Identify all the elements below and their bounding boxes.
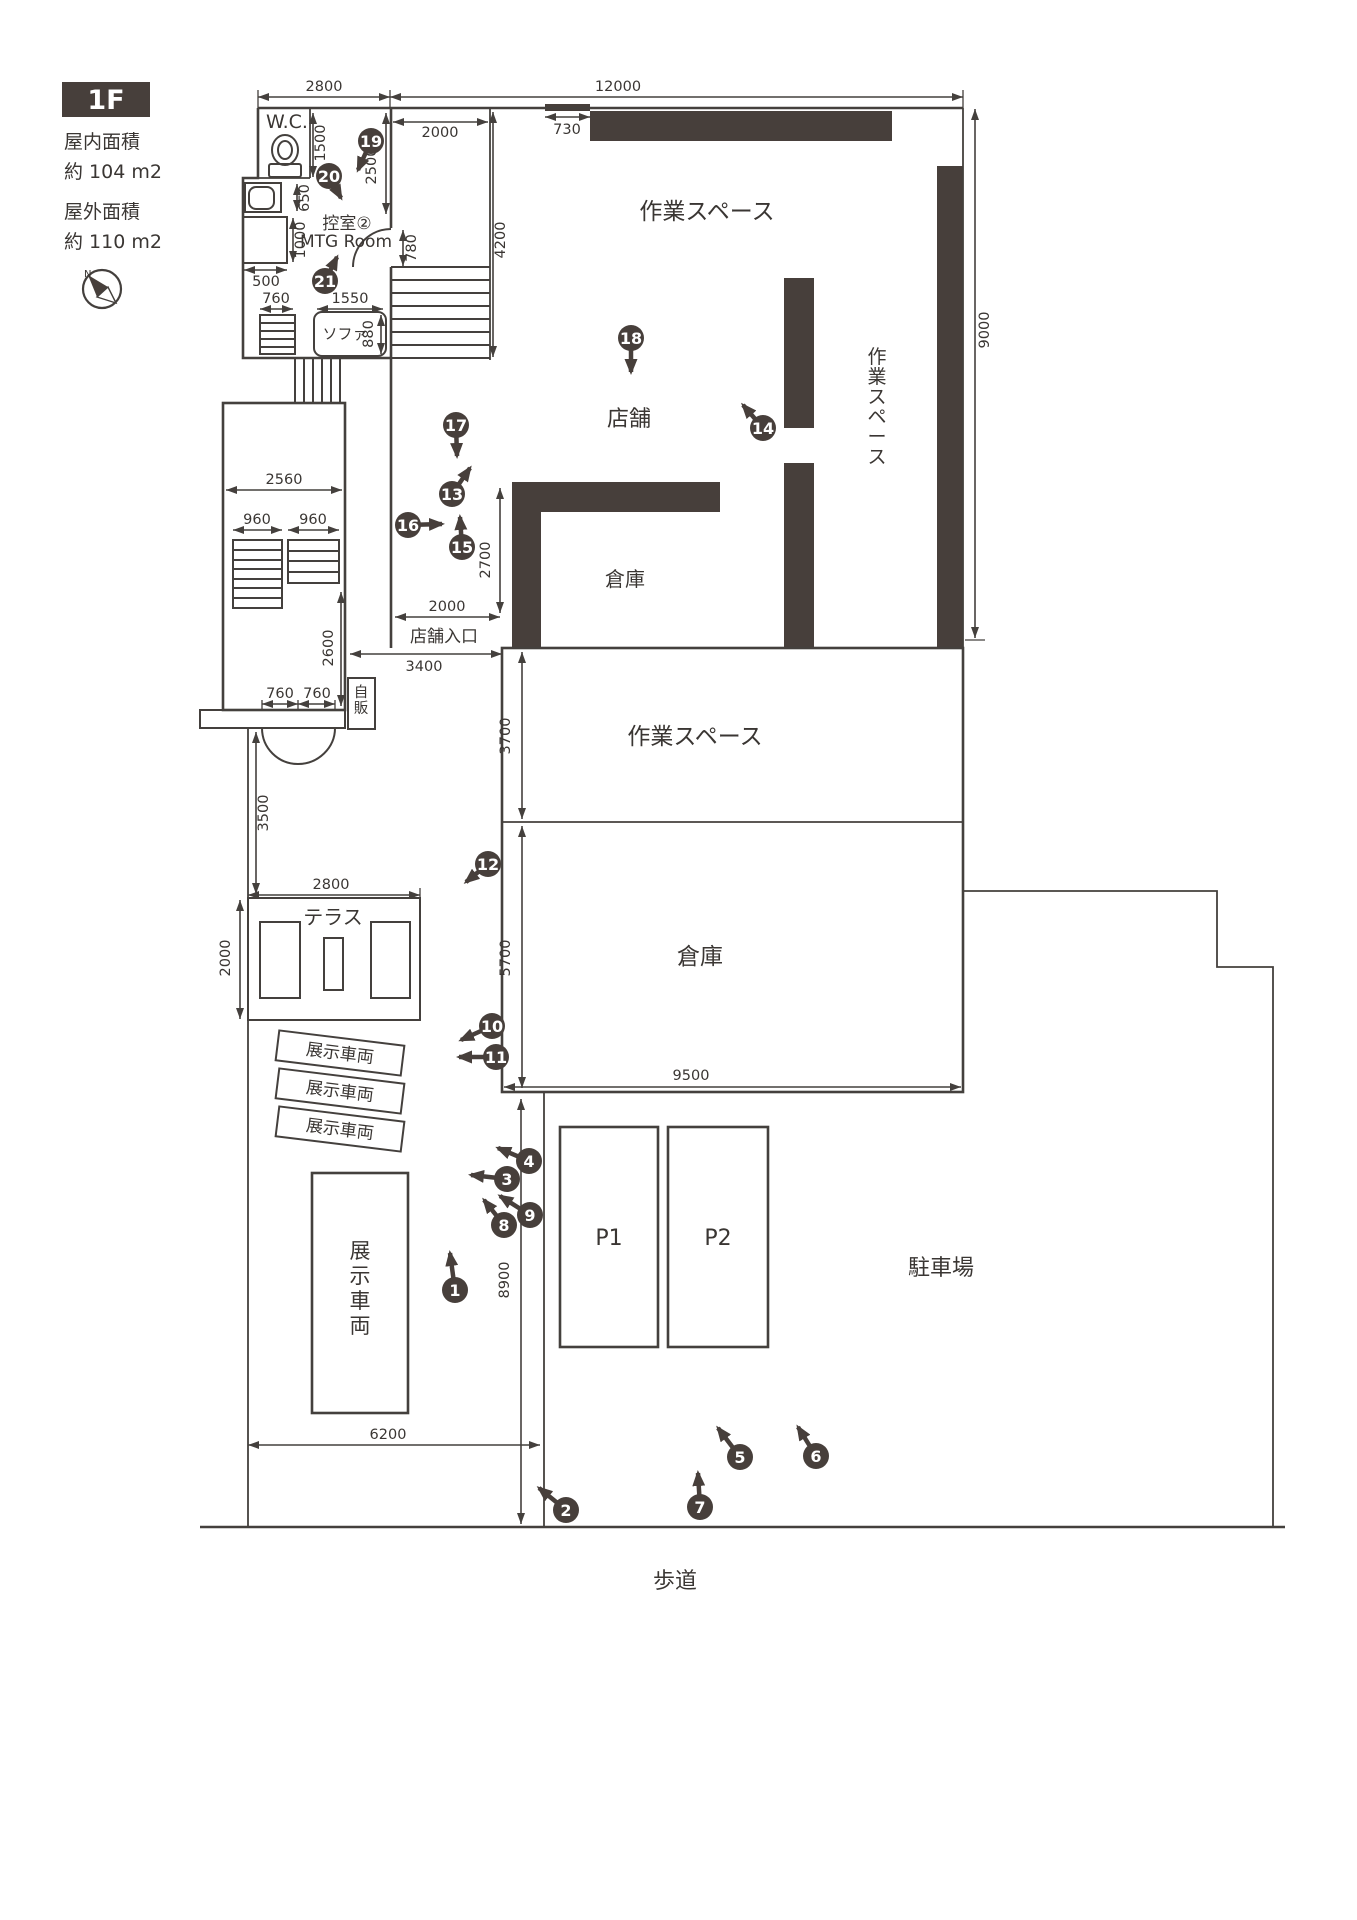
dim-760-door-b: 760 — [303, 686, 331, 702]
dim-1500: 1500 — [313, 125, 329, 162]
room-label-workspace-right: 作業スペース — [867, 346, 886, 468]
terrace-planter-right — [371, 922, 410, 998]
display-car-strips: 展示車両 展示車両 展示車両 — [276, 1030, 405, 1151]
marker-7: 7 — [687, 1473, 713, 1520]
room-label-vending: 自販 — [354, 684, 369, 717]
svg-text:20: 20 — [318, 167, 340, 186]
site-boundary-right — [963, 891, 1273, 1527]
entry-wall-band — [200, 710, 345, 728]
dim-2800-terrace: 2800 — [313, 877, 350, 893]
dim-960a: 960 — [243, 512, 271, 528]
svg-text:10: 10 — [481, 1017, 503, 1036]
dim-500: 500 — [252, 274, 280, 290]
terrace-planter-left — [260, 922, 300, 998]
svg-text:21: 21 — [314, 272, 336, 291]
marker-5: 5 — [718, 1428, 753, 1470]
dim-760-shoe: 760 — [262, 291, 290, 307]
marker-12: 12 — [466, 851, 501, 882]
sidebar: 1F 屋内面積 約 104 m2 屋外面積 約 110 m2 N — [62, 82, 162, 308]
staircase-left — [233, 540, 282, 608]
dim-9000: 9000 — [977, 312, 993, 349]
dim-730: 730 — [553, 122, 581, 138]
svg-text:4: 4 — [523, 1152, 534, 1171]
dim-650: 650 — [297, 184, 313, 212]
dim-2000-terrace: 2000 — [218, 940, 234, 977]
svg-text:7: 7 — [694, 1498, 705, 1517]
dim-2000-entrance: 2000 — [429, 599, 466, 615]
wall-mid-lower-bar — [784, 463, 814, 648]
dim-3400: 3400 — [406, 659, 443, 675]
svg-text:13: 13 — [441, 485, 463, 504]
dim-9500: 9500 — [673, 1068, 710, 1084]
svg-text:18: 18 — [620, 329, 642, 348]
floor-badge-label: 1F — [87, 85, 124, 116]
marker-1: 1 — [442, 1253, 468, 1303]
display-car-strip-3-label: 展示車両 — [305, 1116, 375, 1144]
outdoor-area-value: 約 110 m2 — [64, 231, 162, 253]
dim-2560: 2560 — [266, 472, 303, 488]
marker-15: 15 — [449, 517, 475, 560]
marker-10: 10 — [461, 1013, 505, 1040]
terrace-planter-middle — [324, 938, 343, 990]
washbasin-icon — [245, 183, 281, 212]
svg-text:11: 11 — [485, 1048, 507, 1067]
staircase-strip — [295, 358, 340, 403]
floorplan-drawing: 1F 屋内面積 約 104 m2 屋外面積 約 110 m2 N — [0, 0, 1357, 1920]
indoor-area-value: 約 104 m2 — [64, 161, 162, 183]
dim-6200: 6200 — [370, 1427, 407, 1443]
photo-markers: 1 2 3 4 5 6 7 8 — [312, 128, 829, 1523]
room-label-parking: 駐車場 — [908, 1256, 974, 1281]
shoe-shelf — [260, 315, 295, 354]
indoor-area-label: 屋内面積 — [64, 131, 140, 153]
dim-960b: 960 — [299, 512, 327, 528]
dim-5700: 5700 — [498, 940, 514, 977]
wall-top-bar — [590, 111, 892, 141]
dim-780: 780 — [404, 234, 420, 262]
dim-12000: 12000 — [595, 79, 641, 95]
room-label-shop: 店舗 — [607, 407, 651, 432]
marker-21: 21 — [312, 257, 338, 294]
dim-1550: 1550 — [332, 291, 369, 307]
hall-block — [200, 403, 375, 764]
room-label-waiting: 控室② — [322, 214, 371, 234]
wall-right-bar — [937, 166, 963, 648]
dim-880: 880 — [361, 320, 377, 348]
floorplan-page: 1F 屋内面積 約 104 m2 屋外面積 約 110 m2 N — [0, 0, 1357, 1920]
dim-2000-stair: 2000 — [422, 125, 459, 141]
svg-text:16: 16 — [397, 516, 419, 535]
solid-walls — [512, 104, 963, 648]
outdoor-area-label: 屋外面積 — [64, 201, 140, 223]
marker-17: 17 — [443, 412, 469, 456]
svg-text:5: 5 — [734, 1448, 745, 1467]
wall-mid-upper-bar — [784, 278, 814, 428]
compass-north-label: N — [84, 269, 91, 280]
dim-2800-top: 2800 — [306, 79, 343, 95]
svg-text:3: 3 — [501, 1170, 512, 1189]
svg-text:6: 6 — [810, 1447, 821, 1466]
svg-text:19: 19 — [360, 132, 382, 151]
room-label-workspace-mid: 作業スペース — [627, 724, 762, 750]
room-label-sidewalk: 歩道 — [653, 1569, 697, 1594]
wall-storage-horizontal-bar — [541, 482, 720, 512]
room-label-storage-mid: 倉庫 — [677, 944, 723, 970]
counter — [243, 217, 287, 263]
marker-3: 3 — [471, 1166, 520, 1192]
room-label-display-main: 展示車両 — [350, 1239, 371, 1338]
dim-4200: 4200 — [493, 222, 509, 259]
room-label-storage-upper: 倉庫 — [605, 567, 645, 591]
dim-2600: 2600 — [321, 630, 337, 667]
room-label-p1: P1 — [595, 1226, 622, 1251]
toilet-icon — [269, 135, 301, 177]
building-outline — [243, 108, 963, 648]
dim-1000: 1000 — [293, 222, 309, 259]
display-car-strip-1-label: 展示車両 — [305, 1040, 375, 1068]
room-label-mtg: MTG Room — [300, 232, 392, 252]
marker-16: 16 — [395, 512, 442, 538]
svg-text:15: 15 — [451, 538, 473, 557]
marker-6: 6 — [798, 1427, 829, 1469]
marker-11: 11 — [459, 1044, 509, 1070]
staircase-right — [288, 540, 339, 583]
mid-blocks — [502, 648, 963, 1092]
marker-2: 2 — [539, 1488, 579, 1523]
double-door-arcs — [262, 728, 335, 764]
room-label-workspace-top: 作業スペース — [639, 199, 774, 225]
svg-text:12: 12 — [477, 855, 499, 874]
room-label-terrace: テラス — [303, 905, 363, 929]
dim-3500: 3500 — [256, 795, 272, 832]
svg-text:17: 17 — [445, 416, 467, 435]
dim-2700: 2700 — [478, 542, 494, 579]
svg-text:8: 8 — [498, 1216, 509, 1235]
marker-14: 14 — [743, 405, 776, 441]
marker-20: 20 — [316, 163, 342, 198]
marker-13: 13 — [439, 468, 470, 507]
room-label-wc: W.C. — [266, 111, 308, 133]
dim-3700: 3700 — [498, 718, 514, 755]
wall-storage-vertical-bar — [512, 482, 541, 648]
marker-18: 18 — [618, 325, 644, 372]
dim-760-door-a: 760 — [266, 686, 294, 702]
svg-text:1: 1 — [449, 1281, 460, 1300]
svg-text:9: 9 — [524, 1206, 535, 1225]
room-label-shop-entrance: 店舗入口 — [410, 627, 478, 647]
svg-text:14: 14 — [752, 419, 774, 438]
room-label-p2: P2 — [704, 1226, 731, 1251]
compass-icon: N — [83, 269, 121, 308]
dim-8900: 8900 — [497, 1262, 513, 1299]
svg-text:2: 2 — [560, 1501, 571, 1520]
dimensions: 2800 12000 2000 730 4200 9000 1500 2500 … — [218, 79, 993, 1524]
staircase-top — [391, 267, 490, 358]
mid-block-outline — [502, 648, 963, 1092]
display-car-strip-2-label: 展示車両 — [305, 1078, 375, 1106]
